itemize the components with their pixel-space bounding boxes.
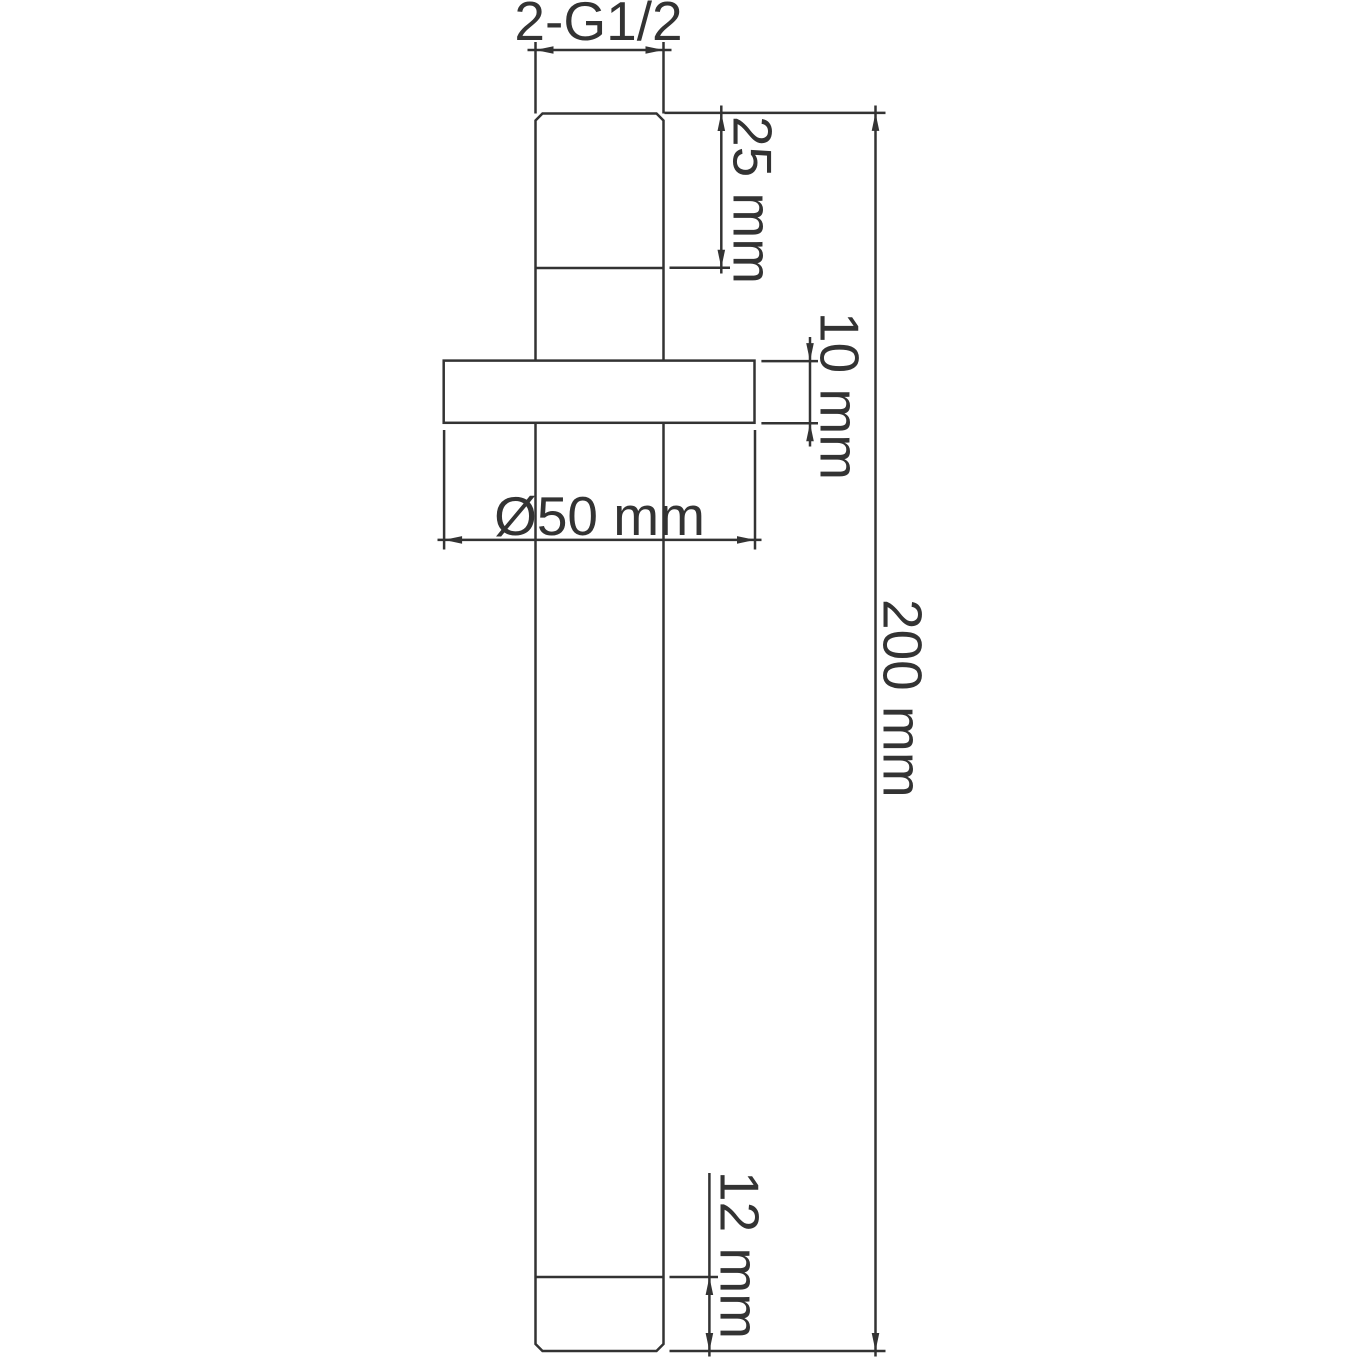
svg-text:10 mm: 10 mm	[809, 312, 871, 480]
svg-text:200 mm: 200 mm	[872, 599, 934, 798]
svg-text:12 mm: 12 mm	[709, 1171, 771, 1339]
svg-text:25 mm: 25 mm	[722, 116, 784, 284]
svg-text:Ø50 mm: Ø50 mm	[494, 485, 705, 547]
svg-text:2-G1/2: 2-G1/2	[514, 0, 682, 52]
